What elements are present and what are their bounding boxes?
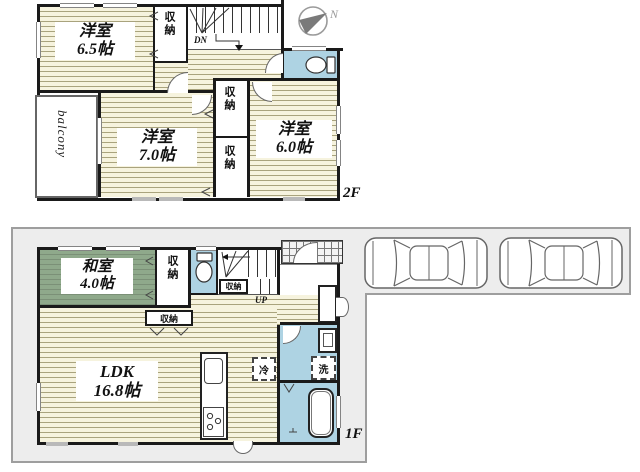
- room-name: LDK: [79, 362, 155, 381]
- floor-plan: 収納 収納 冷 洗: [0, 0, 640, 472]
- kitchen-sink: [204, 358, 223, 384]
- room-size: 16.8帖: [79, 381, 155, 400]
- window: [97, 118, 102, 164]
- washer-space: 洗: [311, 356, 336, 380]
- floor2-label: 2F: [343, 185, 361, 202]
- door-swing-exterior: [233, 441, 253, 454]
- room-name: 洋室: [120, 129, 194, 147]
- closet-label: 収納: [161, 11, 177, 37]
- window: [106, 246, 140, 251]
- stairs-1f-treads: [240, 250, 277, 277]
- window: [336, 140, 341, 166]
- closet-under-stairs: 収納: [219, 279, 248, 294]
- car-icon: [500, 238, 622, 288]
- wall-segment: [213, 78, 337, 81]
- closet-label: 収納: [221, 86, 237, 112]
- shoe-cabinet: [318, 285, 337, 323]
- window: [283, 197, 305, 201]
- room-label-bedroom-6-0: 洋室 6.0帖: [256, 120, 332, 158]
- window: [132, 197, 156, 201]
- room-name: 洋室: [259, 121, 329, 139]
- washroom-sink-bowl: [323, 333, 333, 347]
- wall-segment: [213, 81, 216, 197]
- toilet-1f: [191, 250, 218, 295]
- room-label-bedroom-7-0: 洋室 7.0帖: [117, 128, 197, 166]
- closet-ldk: 収納: [145, 310, 193, 326]
- closet-label: 収納: [221, 145, 237, 171]
- fridge-label: 冷: [259, 362, 269, 377]
- car-icon: [365, 238, 487, 288]
- window: [336, 106, 341, 134]
- floor2-notch: [281, 0, 343, 51]
- closet-label: 収納: [226, 281, 242, 292]
- window: [292, 46, 326, 51]
- window: [118, 442, 138, 446]
- window: [36, 22, 41, 58]
- room-name: 和室: [64, 259, 130, 276]
- window: [36, 383, 41, 411]
- room-size: 4.0帖: [64, 276, 130, 293]
- wall-segment: [280, 322, 337, 325]
- stove: [203, 407, 224, 437]
- refrigerator-space: 冷: [252, 357, 276, 381]
- stairs-1f-treads: [252, 279, 277, 294]
- room-label-japanese: 和室 4.0帖: [61, 258, 133, 294]
- washer-label: 洗: [319, 361, 329, 376]
- bathtub-inner: [311, 391, 331, 435]
- stairs-2f-treads: [188, 7, 281, 33]
- door-swing-exterior: [336, 297, 349, 317]
- room-label-bedroom-6-5: 洋室 6.5帖: [55, 22, 135, 60]
- window: [103, 3, 137, 8]
- room-label-ldk: LDK 16.8帖: [76, 361, 158, 401]
- window: [159, 197, 183, 201]
- room-name: 洋室: [58, 23, 132, 41]
- closet-label: 収納: [160, 312, 178, 325]
- stairs-up-label: UP: [255, 295, 267, 305]
- window: [196, 246, 216, 251]
- room-size: 7.0帖: [120, 147, 194, 165]
- window: [336, 396, 341, 428]
- closet-label: 収納: [164, 255, 180, 281]
- window: [46, 442, 68, 446]
- toilet-2f: [284, 51, 337, 81]
- floor1-label: 1F: [345, 426, 363, 443]
- window: [60, 3, 94, 8]
- wall-segment: [277, 325, 280, 442]
- stairs-down-label: DN: [194, 35, 207, 45]
- room-size: 6.0帖: [259, 139, 329, 157]
- balcony-label: balcony: [54, 110, 70, 158]
- window: [58, 246, 92, 251]
- wall-segment: [247, 81, 250, 197]
- room-size: 6.5帖: [58, 41, 132, 59]
